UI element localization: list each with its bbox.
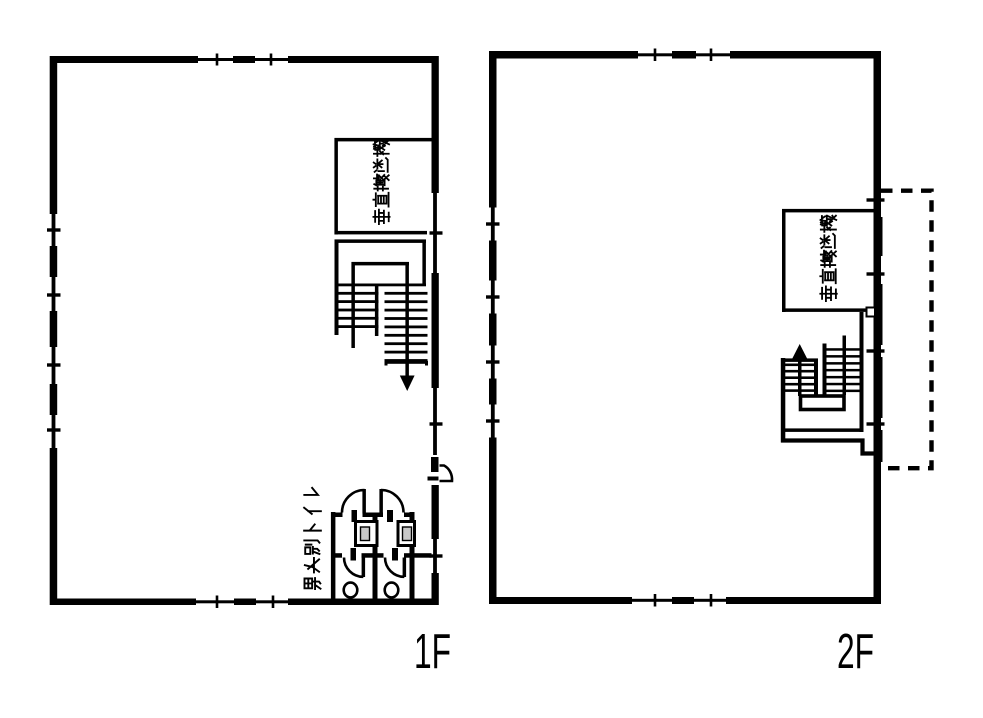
svg-text:1F: 1F xyxy=(414,625,451,679)
svg-text:2F: 2F xyxy=(837,625,874,679)
